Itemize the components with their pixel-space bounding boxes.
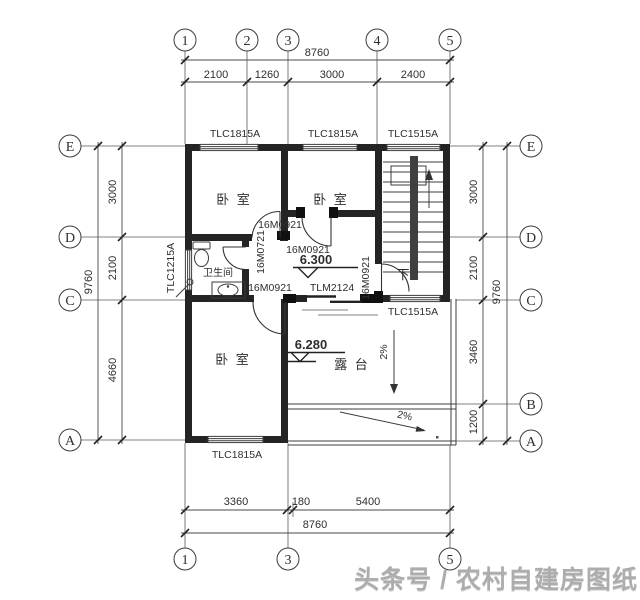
dim-bottom-seg3: 5400 bbox=[356, 496, 380, 508]
axis-label: E bbox=[527, 140, 536, 155]
room-bedroom2: 卧 室 bbox=[313, 192, 349, 207]
room-bedroom1: 卧 室 bbox=[216, 192, 252, 207]
axis-bubble-top-4: 4 bbox=[366, 29, 388, 51]
dim-right-overall: 9760 bbox=[491, 280, 503, 304]
axis-label: D bbox=[65, 231, 75, 246]
axis-label: 3 bbox=[285, 553, 292, 568]
axis-label: 5 bbox=[447, 34, 454, 49]
dim-right-seg1: 3000 bbox=[468, 180, 480, 204]
axis-label: 1 bbox=[182, 34, 189, 49]
door-bedroom2 bbox=[302, 217, 331, 246]
axis-bubble-bottom-3: 3 bbox=[277, 548, 299, 570]
dim-top-seg2: 1260 bbox=[255, 69, 279, 81]
axis-bubble-right-C: C bbox=[520, 289, 542, 311]
tag-window-top-mid: TLC1815A bbox=[308, 128, 358, 140]
window-top-left bbox=[200, 144, 258, 150]
stairs: 下 bbox=[383, 156, 443, 282]
dim-top-seg1: 2100 bbox=[204, 69, 228, 81]
axis-bubble-left-D: D bbox=[59, 226, 81, 248]
dim-left-seg2: 2100 bbox=[107, 256, 119, 280]
dim-bottom-overall: 8760 bbox=[303, 519, 327, 531]
dim-right-seg2: 2100 bbox=[468, 256, 480, 280]
slope-apron-value: 2% bbox=[396, 409, 413, 424]
axis-bubble-bottom-1: 1 bbox=[174, 548, 196, 570]
axis-label: C bbox=[526, 294, 535, 309]
axis-label: 4 bbox=[374, 34, 381, 49]
axis-bubble-top-3: 3 bbox=[277, 29, 299, 51]
slope-terrace-value: 2% bbox=[378, 344, 390, 359]
tag-door-bedroom3: 16M0921 bbox=[248, 282, 292, 294]
slope-arrow-apron-icon: 2% bbox=[340, 409, 426, 432]
tag-door-terrace: TLM2124 bbox=[310, 282, 355, 294]
room-terrace: 露 台 bbox=[334, 357, 370, 372]
axis-label: A bbox=[65, 434, 76, 449]
axis-bubble-top-2: 2 bbox=[236, 29, 258, 51]
axis-bubble-right-A: A bbox=[520, 430, 542, 452]
tag-door-stairwell: 16M0921 bbox=[360, 256, 372, 300]
axis-label: 2 bbox=[244, 34, 251, 49]
axis-label: 3 bbox=[285, 34, 292, 49]
axis-label: 1 bbox=[182, 553, 189, 568]
axis-bubble-top-5: 5 bbox=[439, 29, 461, 51]
tag-window-top-left: TLC1815A bbox=[210, 128, 260, 140]
dim-bottom-seg2: 180 bbox=[292, 496, 310, 508]
axis-bubble-right-B: B bbox=[520, 393, 542, 415]
dim-right-seg3: 3460 bbox=[468, 340, 480, 364]
axis-label: A bbox=[526, 435, 537, 450]
tag-window-top-right: TLC1515A bbox=[388, 128, 438, 140]
dim-top-seg3: 3000 bbox=[320, 69, 344, 81]
dim-left-overall: 9760 bbox=[83, 270, 95, 294]
axis-bubble-left-E: E bbox=[59, 135, 81, 157]
slope-arrow-terrace-icon: 2% bbox=[378, 330, 398, 394]
dim-bottom-seg1: 3360 bbox=[224, 496, 248, 508]
stair-rail bbox=[410, 156, 418, 280]
floor-plan-drawing: 8760 2100 1260 3000 2400 3360 180 5400 8… bbox=[0, 0, 640, 600]
axis-bubble-left-A: A bbox=[59, 429, 81, 451]
room-bedroom3: 卧 室 bbox=[215, 352, 251, 367]
room-bathroom: 卫生间 bbox=[203, 266, 233, 279]
dim-left-seg1: 3000 bbox=[107, 180, 119, 204]
elevation-hall-value: 6.300 bbox=[300, 252, 333, 267]
dimension-labels: 8760 2100 1260 3000 2400 3360 180 5400 8… bbox=[83, 47, 503, 531]
tag-window-bottom: TLC1815A bbox=[212, 449, 262, 461]
dim-right-seg4: 1200 bbox=[468, 410, 480, 434]
window-top-mid bbox=[303, 144, 357, 150]
stair-down-label: 下 bbox=[396, 267, 411, 282]
dim-top-overall: 8760 bbox=[305, 47, 329, 59]
floor-plan-page: 8760 2100 1260 3000 2400 3360 180 5400 8… bbox=[0, 0, 640, 600]
watermark: 头条号 / 农村自建房图纸 bbox=[354, 560, 638, 596]
elevation-terrace-value: 6.280 bbox=[295, 337, 328, 352]
tag-window-left: TLC1215A bbox=[165, 243, 177, 293]
tag-door-bathroom: 16M0721 bbox=[255, 230, 267, 274]
door-bathroom bbox=[223, 247, 246, 270]
axis-label: D bbox=[526, 231, 536, 246]
axis-bubble-right-D: D bbox=[520, 226, 542, 248]
axis-label: E bbox=[66, 140, 75, 155]
terrace-outline bbox=[288, 299, 456, 445]
axis-bubble-left-C: C bbox=[59, 289, 81, 311]
window-bottom bbox=[208, 436, 263, 442]
axis-bubble-top-1: 1 bbox=[174, 29, 196, 51]
tag-window-stair: TLC1515A bbox=[388, 306, 438, 318]
window-top-right bbox=[387, 144, 440, 150]
tag-door-bedroom1: 16M0921 bbox=[258, 219, 302, 231]
elevation-marker-hall: 6.300 bbox=[293, 252, 358, 278]
dim-left-seg3: 4660 bbox=[107, 358, 119, 382]
axis-label: B bbox=[526, 398, 535, 413]
door-bedroom3 bbox=[253, 302, 285, 334]
axis-label: C bbox=[65, 294, 74, 309]
window-stair-south bbox=[390, 295, 440, 301]
dim-top-seg4: 2400 bbox=[401, 69, 425, 81]
axis-bubble-right-E: E bbox=[520, 135, 542, 157]
toilet bbox=[193, 242, 210, 267]
